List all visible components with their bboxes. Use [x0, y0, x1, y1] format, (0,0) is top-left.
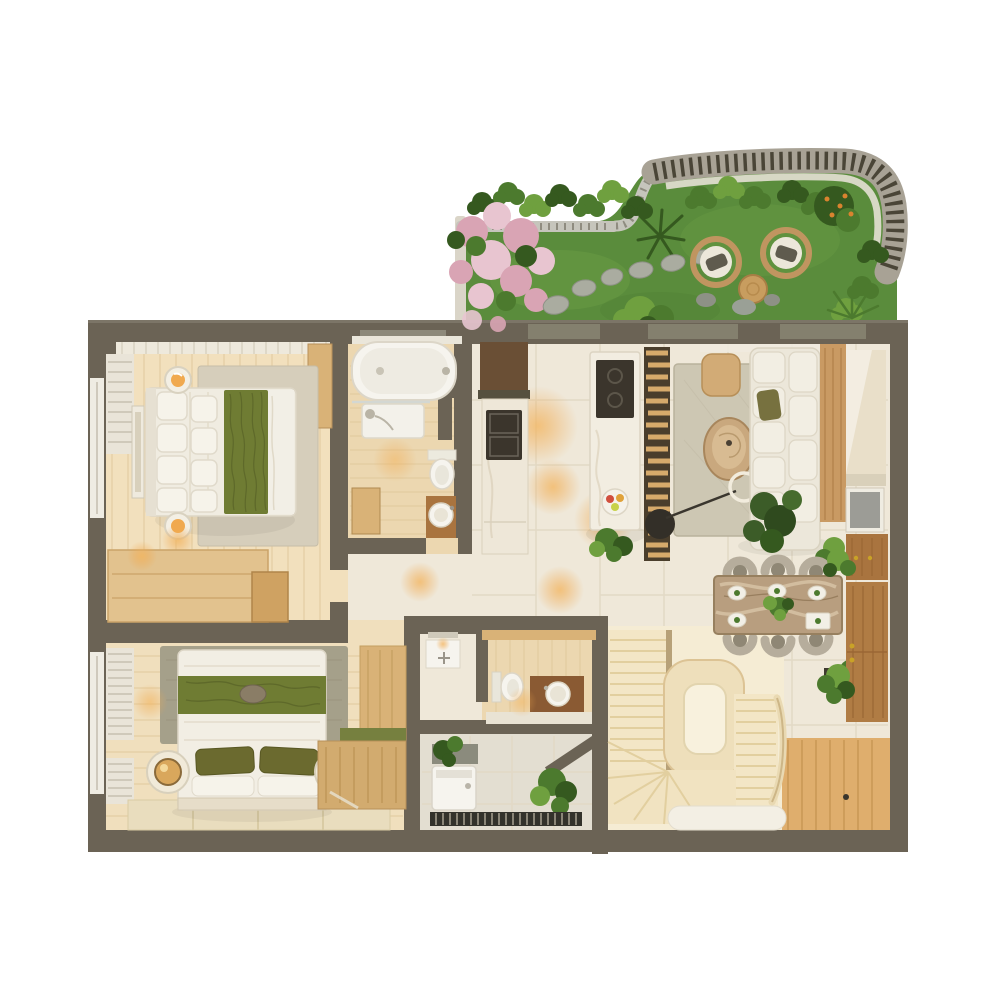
wood-wall-panel	[482, 630, 596, 640]
olive-pillow	[259, 747, 318, 776]
white-pillow	[258, 776, 320, 796]
floor-plan-render	[0, 0, 1000, 1000]
basin-counter	[426, 496, 456, 538]
fruit-bowl	[602, 489, 628, 515]
double-bed	[146, 388, 296, 516]
bed	[172, 650, 332, 822]
kitchen-island	[586, 352, 646, 544]
terrace-window	[648, 324, 738, 339]
upper-stair-flight	[608, 630, 672, 772]
louvered-vent	[430, 812, 582, 826]
decor-pebble	[240, 685, 266, 703]
shower	[352, 402, 430, 438]
tall-cabinet-column	[478, 342, 530, 554]
marble-strip	[486, 712, 592, 724]
white-pillow	[192, 776, 254, 796]
terrace-window	[528, 324, 600, 339]
olive-throw	[756, 389, 782, 422]
cooktop	[596, 360, 634, 418]
dining-table	[714, 576, 842, 634]
washing-machine	[432, 766, 476, 810]
media-wall	[815, 344, 888, 580]
entry-hall-wood-floor	[782, 738, 890, 834]
storage-cabinet	[846, 582, 888, 722]
bathtub	[352, 342, 456, 400]
outdoor-side-table	[739, 275, 767, 303]
oven-stack	[486, 410, 522, 460]
side-table	[702, 354, 740, 396]
utility-niche	[426, 632, 460, 668]
shelf	[846, 474, 886, 486]
stair-landing-ring	[664, 660, 744, 776]
round-rattan-lamp	[147, 751, 189, 793]
terrace-window	[780, 324, 866, 339]
wood-bench	[352, 488, 380, 534]
olive-pillow	[195, 747, 254, 776]
floor-plan-canvas	[0, 0, 1000, 1000]
door-stop	[843, 794, 849, 800]
bedside-lamp	[165, 367, 191, 393]
sheer-curtain-stack	[106, 354, 134, 454]
coffee-table	[704, 418, 754, 480]
wood-vanity	[530, 676, 584, 716]
headboard	[178, 798, 326, 810]
lower-stair-flight	[734, 694, 783, 806]
curtain-rail	[116, 342, 330, 354]
tv	[846, 488, 884, 532]
toilet	[428, 450, 456, 489]
green-band	[340, 728, 406, 741]
white-runner-rug	[668, 806, 786, 830]
dresser-cabinets	[108, 541, 288, 622]
roof-garden	[447, 160, 897, 336]
